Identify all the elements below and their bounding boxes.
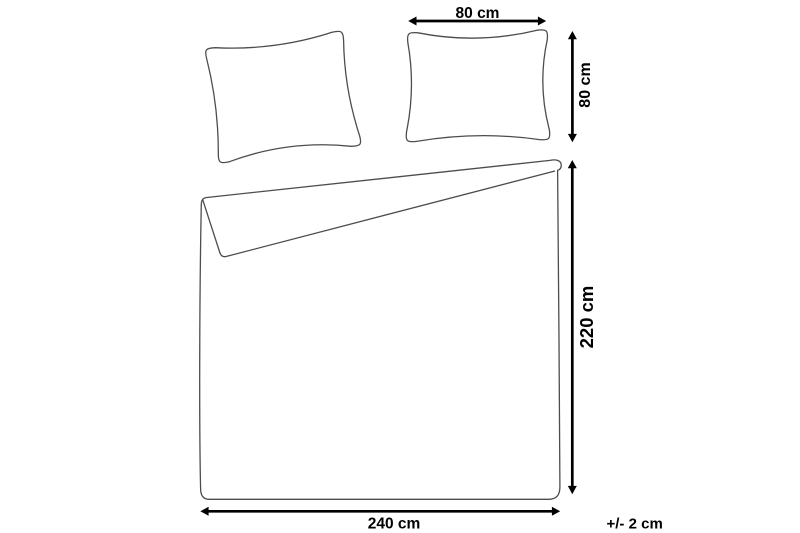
svg-text:220 cm: 220 cm bbox=[576, 286, 597, 349]
svg-text:+/- 2 cm: +/- 2 cm bbox=[607, 516, 663, 533]
svg-text:240 cm: 240 cm bbox=[368, 516, 421, 533]
svg-text:80 cm: 80 cm bbox=[577, 62, 594, 107]
svg-text:80 cm: 80 cm bbox=[456, 5, 500, 22]
